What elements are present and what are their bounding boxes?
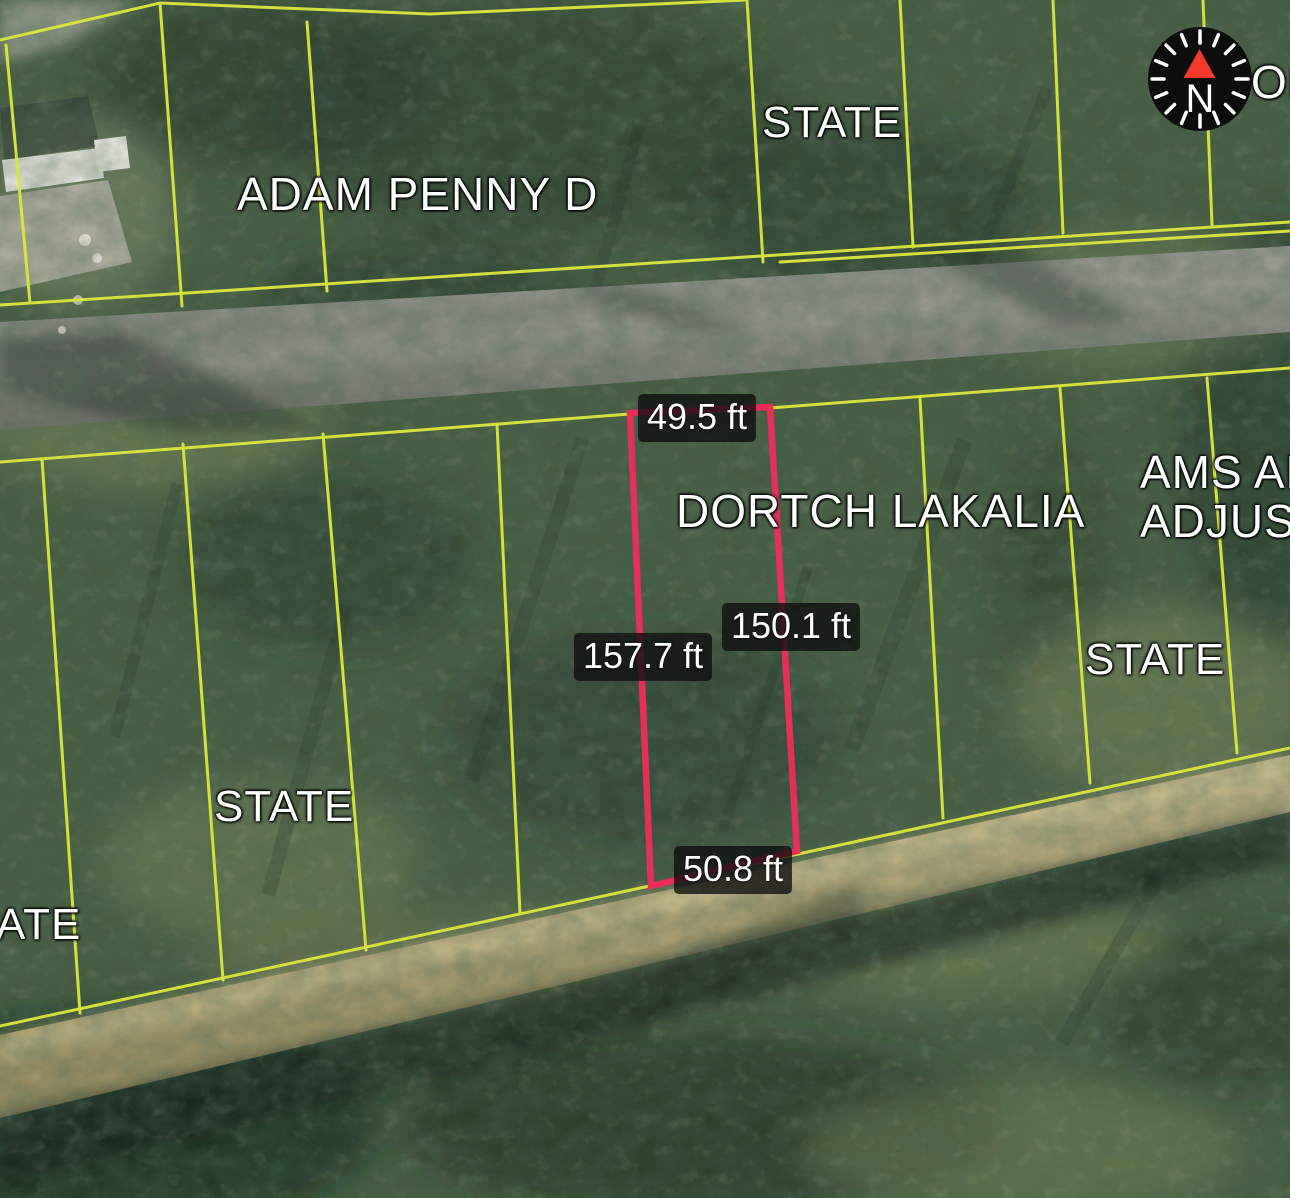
parcel-label-state-partial: ATE xyxy=(0,902,81,948)
parcel-label-ams-line2: ADJUST xyxy=(1140,497,1290,545)
dimension-label-top: 49.5 ft xyxy=(638,394,756,442)
parcel-label-adam-penny: ADAM PENNY D xyxy=(237,170,598,218)
dimension-label-bottom: 50.8 ft xyxy=(674,846,792,894)
map-viewport[interactable]: N ADAM PENNY D STATE DORTCH LAKALIA AMS … xyxy=(0,0,1290,1198)
parcel-label-state-top: STATE xyxy=(762,100,902,146)
compass-control[interactable]: N xyxy=(1148,27,1252,131)
compass-north-letter: N xyxy=(1186,77,1215,121)
parcel-label-partial-of: OF xyxy=(1251,58,1290,106)
parcel-label-state-left: STATE xyxy=(214,784,354,830)
parcel-label-state-right: STATE xyxy=(1085,637,1225,683)
dimension-label-left: 157.7 ft xyxy=(574,633,712,681)
parcel-label-ams-line1: AMS AL xyxy=(1140,448,1290,496)
satellite-basemap: N xyxy=(0,0,1290,1198)
parcel-label-dortch-lakalia: DORTCH LAKALIA xyxy=(676,487,1085,535)
dimension-label-right: 150.1 ft xyxy=(722,603,860,651)
